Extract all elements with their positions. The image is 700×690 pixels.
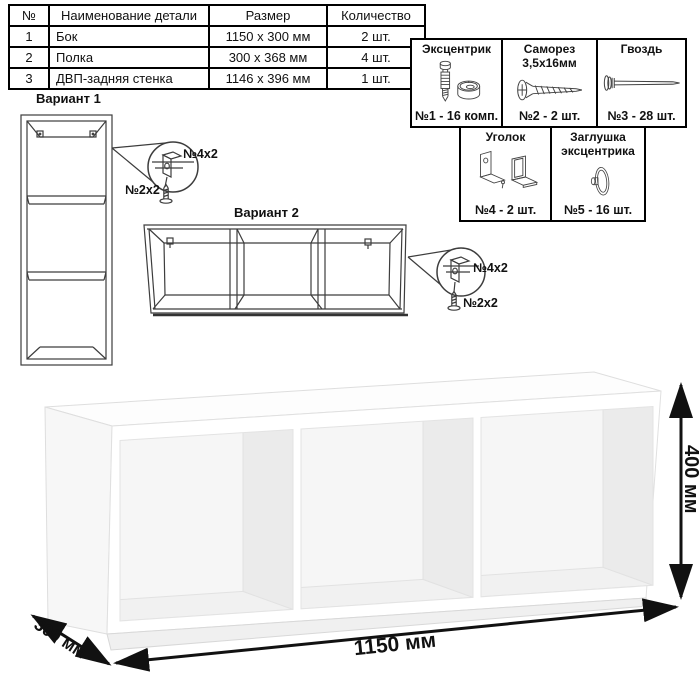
hardware-box-nail: Гвоздь №3 - 28 шт.	[596, 38, 687, 128]
col-header-size: Размер	[209, 5, 327, 26]
variant2-bracket-label: №4х2	[473, 261, 508, 275]
hardware-title: Уголок	[486, 128, 526, 145]
part-num: 3	[9, 68, 49, 89]
part-num: 2	[9, 47, 49, 68]
hardware-count: №1 - 16 комп.	[415, 109, 498, 126]
part-row: 1 Бок 1150 x 300 мм 2 шт.	[9, 26, 425, 47]
part-name: Полка	[49, 47, 209, 68]
assembly-instruction-sheet: № Наименование детали Размер Количество …	[0, 0, 700, 690]
hardware-count: №5 - 16 шт.	[564, 203, 632, 220]
corner-bracket-icon	[462, 147, 550, 201]
part-size: 1150 x 300 мм	[209, 26, 327, 47]
part-size: 300 x 368 мм	[209, 47, 327, 68]
cam-cover-icon	[575, 159, 621, 203]
variant2-drawing	[140, 218, 520, 353]
height-dimension-label: 400 мм	[679, 445, 700, 514]
part-row: 2 Полка 300 x 368 мм 4 шт.	[9, 47, 425, 68]
hardware-count: №2 - 2 шт.	[519, 109, 580, 126]
hardware-box-eccentric: Эксцентрик №1 - 16 комп.	[410, 38, 503, 128]
hardware-box-corner-bracket: Уголок №4 - 2 шт.	[459, 126, 552, 222]
hardware-count: №3 - 28 шт.	[607, 109, 675, 126]
part-size: 1146 x 396 мм	[209, 68, 327, 89]
hardware-box-cam-cover: Заглушка эксцентрика №5 - 16 шт.	[550, 126, 646, 222]
parts-table: № Наименование детали Размер Количество …	[8, 4, 426, 90]
hardware-title: Гвоздь	[621, 40, 663, 57]
col-header-qty: Количество	[327, 5, 425, 26]
hardware-box-screw: Саморез 3,5х16мм №2 - 2 шт.	[501, 38, 598, 128]
parts-table-header-row: № Наименование детали Размер Количество	[9, 5, 425, 26]
part-num: 1	[9, 26, 49, 47]
hardware-title: Заглушка эксцентрика	[561, 128, 635, 159]
col-header-name: Наименование детали	[49, 5, 209, 26]
part-name: Бок	[49, 26, 209, 47]
variant1-bracket-label: №4х2	[183, 147, 218, 161]
hardware-title: Эксцентрик	[422, 40, 491, 57]
cam-bolt-icon	[424, 58, 490, 108]
variant1-screw-label: №2х2	[125, 183, 160, 197]
screw-icon	[511, 72, 589, 108]
hardware-title: Саморез 3,5х16мм	[522, 40, 576, 71]
variant2-screw-label: №2х2	[463, 296, 498, 310]
nail-icon	[601, 72, 683, 94]
part-name: ДВП-задняя стенка	[49, 68, 209, 89]
col-header-num: №	[9, 5, 49, 26]
part-row: 3 ДВП-задняя стенка 1146 x 396 мм 1 шт.	[9, 68, 425, 89]
